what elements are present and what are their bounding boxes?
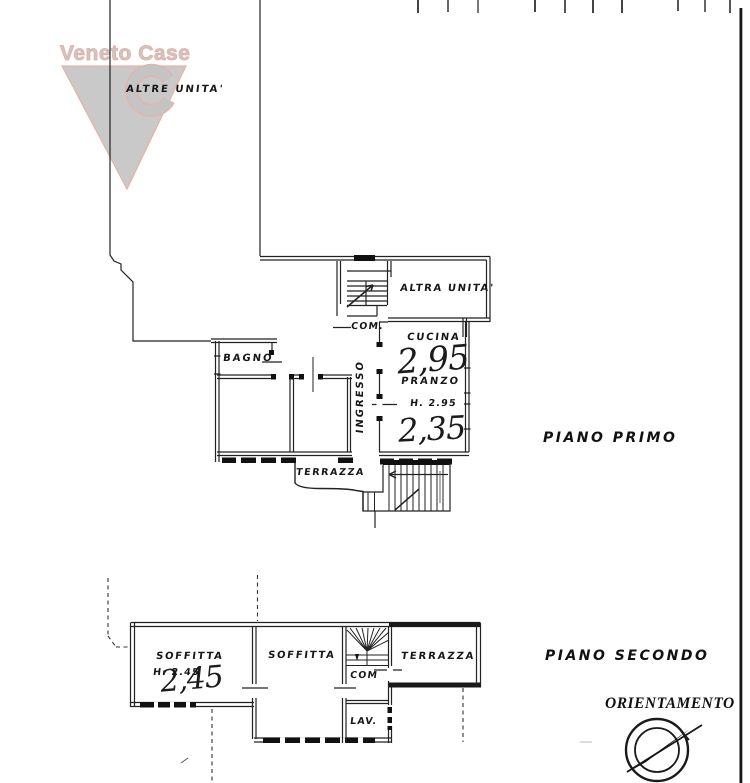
handwritten-pranzo-height: 2,35 <box>397 408 466 449</box>
label-altra-unita: ALTRA UNITA' <box>399 283 495 294</box>
second-floor-title: PIANO SECONDO <box>545 648 709 664</box>
handwritten-soffitta-height: 2,45 <box>159 659 225 699</box>
label-terrazza-first-floor: TERRAZZA <box>295 467 365 478</box>
label-altre-unita-top: ALTRE UNITA' <box>125 84 225 95</box>
label-com-first-floor: COM. <box>350 321 384 332</box>
label-ingresso: INGRESSO <box>355 356 369 438</box>
label-terrazza-second-floor: TERRAZZA <box>400 651 476 662</box>
compass-icon <box>626 719 702 781</box>
floorplan-page: Veneto Case <box>0 0 750 783</box>
orientation-title: ORIENTAMENTO <box>605 695 735 713</box>
label-com-second-floor: COM <box>349 670 378 681</box>
first-floor-title: PIANO PRIMO <box>543 430 677 446</box>
scan-ruler-ticks <box>418 0 730 13</box>
label-soffitta-middle: SOFFITTA <box>267 650 336 661</box>
scan-page-border <box>740 8 743 783</box>
label-lav: LAV. <box>349 716 378 727</box>
floorplan-drawing <box>0 0 750 783</box>
label-pranzo: PRANZO <box>400 376 460 387</box>
label-bagno: BAGNO <box>222 353 274 364</box>
label-pranzo-height: H. 2.95 <box>409 398 457 409</box>
